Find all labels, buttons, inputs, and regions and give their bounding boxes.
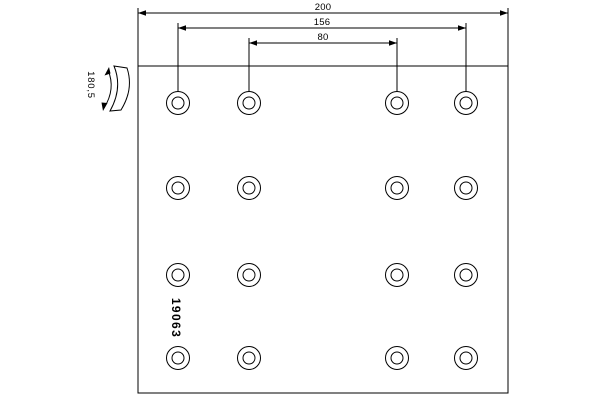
- rivet-hole-outer: [167, 264, 190, 287]
- rivet-hole-outer: [167, 177, 190, 200]
- rivet-hole-outer: [455, 177, 478, 200]
- brake-lining-technical-drawing: 200 156 80 180,5 19063: [0, 0, 600, 400]
- dim-80-arrow-left: [249, 40, 257, 45]
- lining-profile-crescent: [110, 66, 129, 111]
- dim-156-arrow-right: [458, 25, 466, 30]
- rivet-hole-outer: [386, 92, 409, 115]
- rivet-hole-outer: [455, 92, 478, 115]
- dim-200-arrow-right: [500, 10, 508, 15]
- curvature-symbol: 180,5: [85, 66, 129, 111]
- arc-dimension-line: [104, 70, 111, 108]
- rivet-hole-outer: [386, 347, 409, 370]
- rivet-hole-outer: [167, 92, 190, 115]
- dim-200-label: 200: [315, 2, 331, 13]
- rivet-hole-outer: [167, 347, 190, 370]
- rivet-hole-outer: [386, 264, 409, 287]
- rivet-hole-outer: [238, 177, 261, 200]
- rivet-hole-outer: [238, 92, 261, 115]
- drawing-canvas: 200 156 80 180,5 19063: [0, 0, 600, 400]
- dim-156-label: 156: [314, 17, 330, 28]
- dim-200-arrow-left: [138, 10, 146, 15]
- part-number-label: 19063: [169, 298, 183, 338]
- dim-80-label: 80: [318, 32, 329, 43]
- rivet-hole-outer: [238, 347, 261, 370]
- lining-outline: [138, 66, 508, 393]
- dim-156-arrow-left: [178, 25, 186, 30]
- arc-arrow-bottom: [102, 103, 108, 112]
- rivet-hole-outer: [238, 264, 261, 287]
- arc-width-label: 180,5: [85, 71, 96, 99]
- rivet-hole-outer: [455, 347, 478, 370]
- dim-80-arrow-right: [389, 40, 397, 45]
- rivet-hole-outer: [386, 177, 409, 200]
- rivet-hole-outer: [455, 264, 478, 287]
